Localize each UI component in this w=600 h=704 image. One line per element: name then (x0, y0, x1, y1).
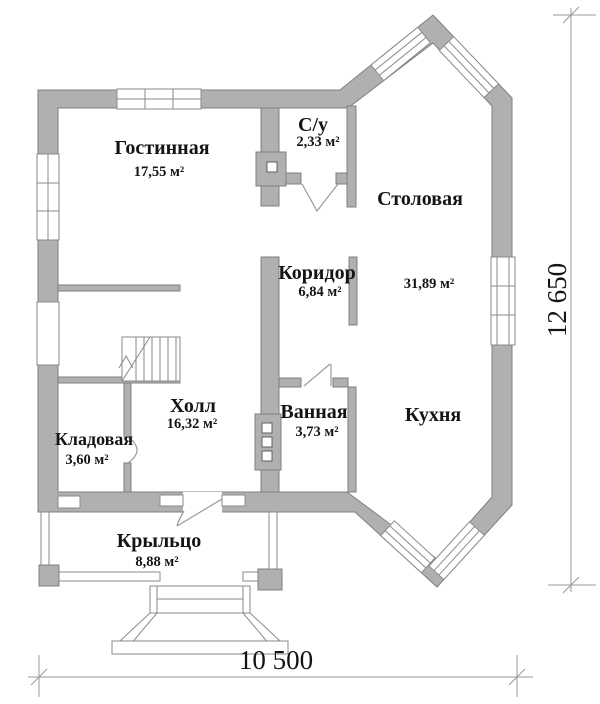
window-left-lower (37, 302, 59, 365)
wall-bath-right (348, 387, 356, 492)
entry-steps (112, 586, 288, 654)
vent-block-bath (255, 414, 281, 470)
porch-post-right (258, 569, 282, 590)
vent-block-living (256, 152, 286, 186)
label-bathroom-area: 3,73 м² (295, 424, 338, 440)
window-right (491, 257, 515, 345)
window-storage-south (58, 496, 80, 508)
label-storage-area: 3,60 м² (65, 452, 108, 468)
label-hall: Холл (170, 395, 216, 417)
label-storage: Кладовая (55, 429, 134, 449)
wall-bath-top-right (333, 378, 348, 387)
sidelight-left (160, 495, 183, 506)
label-hall-area: 16,32 м² (167, 416, 217, 432)
label-dining-room: Столовая (377, 188, 463, 210)
dimension-width-label: 10 500 (239, 645, 313, 675)
label-living-room-area: 17,55 м² (134, 164, 184, 180)
porch-rail-right (269, 512, 277, 569)
label-corridor: Коридор (278, 262, 355, 284)
floor-plan-canvas: 10 500 12 650 Гостинная 17,55 м² С/у 2,3… (0, 0, 600, 704)
door-wc (302, 184, 338, 211)
label-corridor-area: 6,84 м² (298, 284, 341, 300)
dimension-bottom: 10 500 (28, 645, 533, 697)
label-wc: С/у (298, 114, 328, 136)
label-bathroom: Ванная (280, 401, 347, 423)
porch-rail-left (41, 512, 49, 567)
sidelight-right (222, 495, 245, 506)
floor-plan-drawing: 10 500 12 650 Гостинная 17,55 м² С/у 2,3… (0, 0, 600, 704)
window-bay-bottom-right (429, 522, 484, 580)
label-wc-area: 2,33 м² (296, 134, 339, 150)
wall-wc-right (347, 106, 356, 207)
wall-bath-top-left (279, 378, 301, 387)
window-left (37, 154, 59, 240)
wall-storage-right-lower (124, 463, 131, 492)
window-bay-bottom-left (381, 521, 435, 573)
window-bay-top-right (439, 37, 498, 98)
label-kitchen: Кухня (405, 404, 462, 426)
label-living-room: Гостинная (114, 137, 209, 159)
dimension-height-label: 12 650 (542, 263, 572, 337)
window-bay-top-left (371, 27, 430, 80)
porch-rail-bottom-left (49, 572, 160, 581)
label-porch: Крыльцо (117, 530, 202, 552)
porch-post-left (39, 565, 59, 586)
wall-living-hall (58, 285, 180, 291)
label-dining-kitchen-area: 31,89 м² (404, 276, 454, 292)
window-top (117, 89, 201, 109)
stairs (119, 337, 180, 381)
wall-wc-bottom-right (336, 173, 348, 184)
label-porch-area: 8,88 м² (135, 554, 178, 570)
door-bathroom (304, 364, 331, 386)
dimension-right: 12 650 (542, 7, 596, 593)
